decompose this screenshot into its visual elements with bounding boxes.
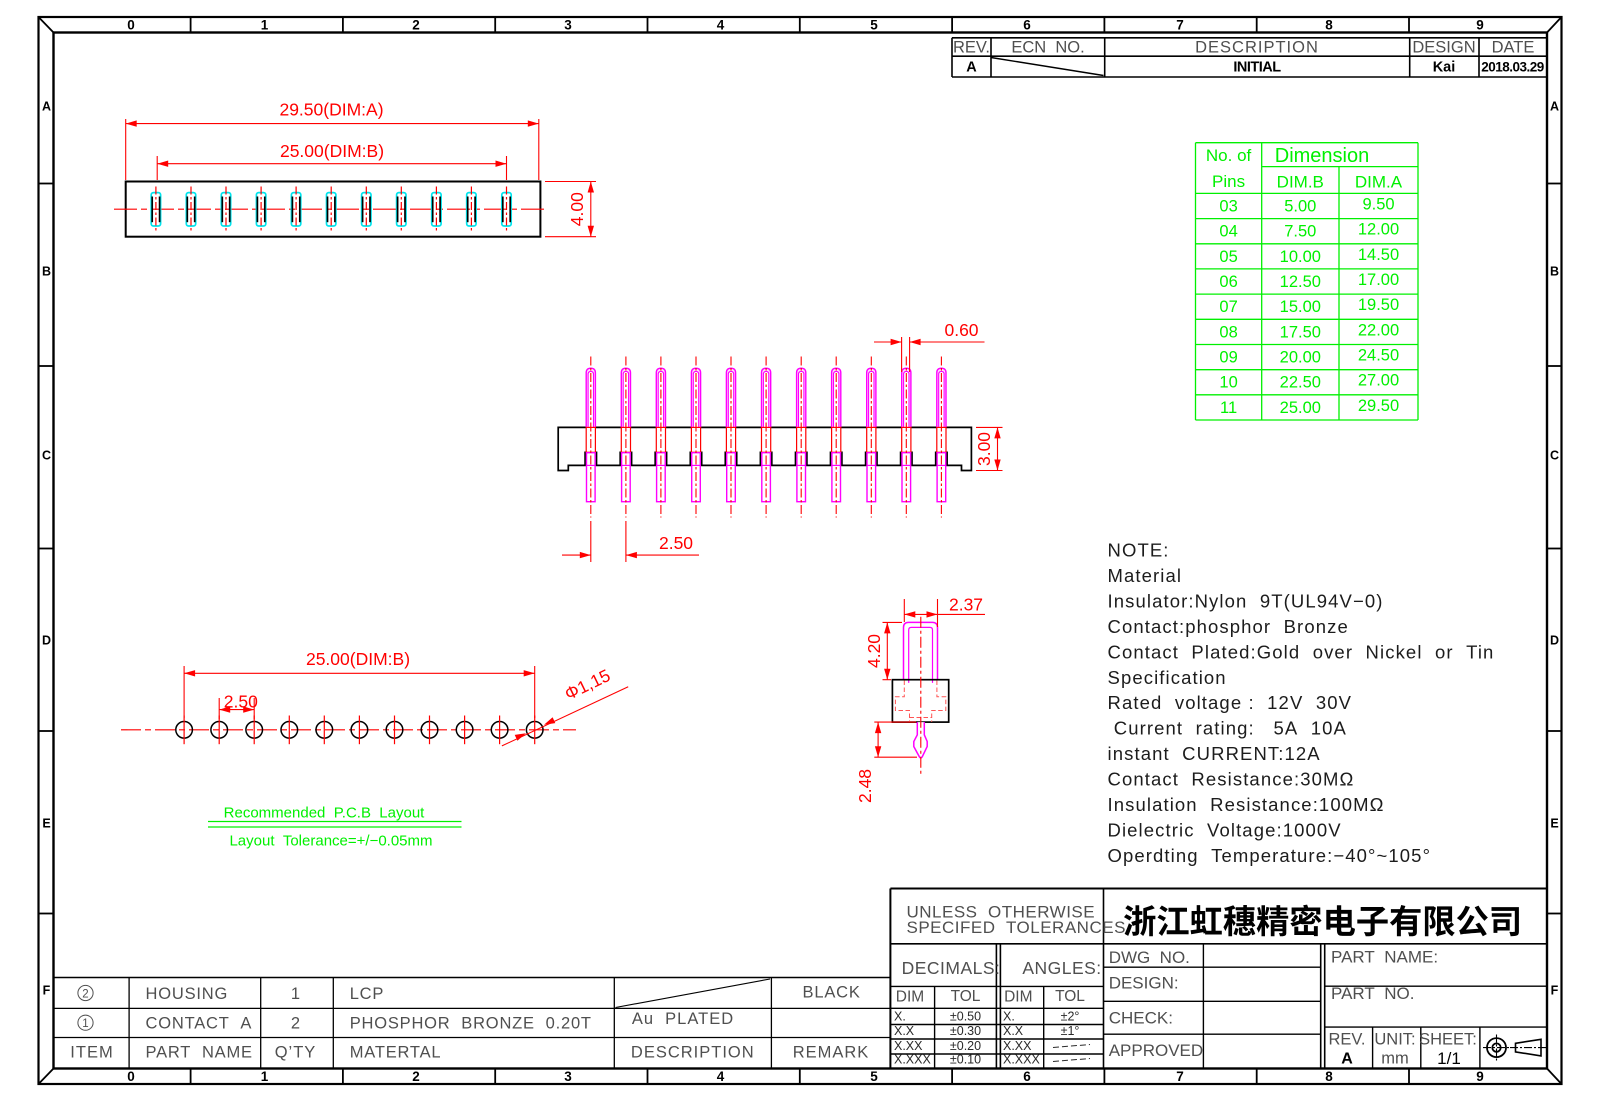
svg-text:17.00: 17.00 — [1358, 271, 1399, 289]
svg-text:D: D — [42, 634, 51, 648]
svg-text:27.00: 27.00 — [1358, 372, 1399, 390]
svg-text:E: E — [42, 817, 50, 831]
svg-text:Insulation Resistance:100MΩ: Insulation Resistance:100MΩ — [1108, 794, 1385, 815]
svg-text:A: A — [42, 100, 51, 114]
svg-text:3: 3 — [564, 18, 572, 33]
svg-text:Contact Resistance:30MΩ: Contact Resistance:30MΩ — [1108, 769, 1355, 790]
svg-text:Kai: Kai — [1433, 60, 1456, 76]
svg-text:2: 2 — [412, 18, 420, 33]
svg-text:X.XX: X.XX — [1003, 1039, 1032, 1053]
svg-text:6: 6 — [1023, 18, 1031, 33]
svg-text:3: 3 — [564, 1069, 572, 1084]
svg-text:REV.: REV. — [1329, 1031, 1366, 1049]
svg-text:1: 1 — [82, 1018, 88, 1030]
svg-text:A: A — [1550, 100, 1559, 114]
svg-text:04: 04 — [1219, 223, 1237, 241]
svg-text:A: A — [966, 60, 977, 76]
svg-text:No. of: No. of — [1206, 146, 1252, 165]
svg-text:Layout Tolerance=+/−0.05mm: Layout Tolerance=+/−0.05mm — [229, 833, 432, 850]
svg-text:DIM.B: DIM.B — [1277, 173, 1324, 192]
svg-text:2.50: 2.50 — [224, 692, 258, 712]
svg-text:8: 8 — [1325, 18, 1333, 33]
svg-text:±0.10: ±0.10 — [950, 1053, 981, 1067]
svg-text:mm: mm — [1381, 1050, 1409, 1068]
svg-text:C: C — [42, 449, 51, 463]
svg-text:Insulator:Nylon 9T(UL94V−0): Insulator:Nylon 9T(UL94V−0) — [1108, 590, 1384, 611]
svg-text:2.37: 2.37 — [949, 595, 983, 615]
svg-text:Dielectric Voltage:1000V: Dielectric Voltage:1000V — [1108, 820, 1342, 841]
svg-text:2.48: 2.48 — [855, 769, 875, 803]
svg-text:25.00: 25.00 — [1280, 399, 1321, 417]
svg-text:03: 03 — [1219, 198, 1237, 216]
svg-text:SPECIFED TOLERANCES: SPECIFED TOLERANCES — [907, 918, 1126, 937]
svg-text:±2°: ±2° — [1061, 1010, 1080, 1024]
svg-text:PART NAME: PART NAME — [146, 1044, 253, 1062]
svg-text:4.00: 4.00 — [567, 192, 587, 226]
svg-text:X.X: X.X — [1003, 1024, 1024, 1038]
svg-text:B: B — [42, 265, 51, 279]
svg-text:±0.30: ±0.30 — [950, 1024, 981, 1038]
svg-text:DESIGN:: DESIGN: — [1109, 974, 1179, 993]
svg-text:REV.: REV. — [953, 39, 990, 57]
svg-text:9.50: 9.50 — [1362, 196, 1394, 214]
svg-text:2: 2 — [291, 1015, 300, 1033]
svg-text:25.00(DIM:B): 25.00(DIM:B) — [306, 649, 410, 669]
svg-text:2.50: 2.50 — [659, 533, 693, 553]
svg-text:1: 1 — [291, 985, 300, 1003]
svg-text:4: 4 — [717, 1069, 725, 1084]
svg-text:UNIT:: UNIT: — [1374, 1031, 1415, 1049]
svg-text:19.50: 19.50 — [1358, 296, 1399, 314]
svg-text:Recommended P.C.B Layout: Recommended P.C.B Layout — [224, 805, 426, 822]
svg-text:Q’TY: Q’TY — [275, 1044, 317, 1062]
svg-text:Au PLATED: Au PLATED — [632, 1010, 734, 1028]
svg-text:Pins: Pins — [1212, 172, 1245, 191]
svg-text:TOL: TOL — [1055, 988, 1085, 1005]
svg-text:0.60: 0.60 — [944, 320, 978, 340]
svg-text:DATE: DATE — [1492, 39, 1535, 57]
svg-text:20.00: 20.00 — [1280, 349, 1321, 367]
svg-text:24.50: 24.50 — [1358, 347, 1399, 365]
svg-text:DESCRIPTION: DESCRIPTION — [1195, 39, 1319, 57]
svg-text:F: F — [1551, 984, 1559, 998]
svg-text:0: 0 — [127, 18, 135, 33]
svg-text:Operdting Temperature:−40°~10: Operdting Temperature:−40°~105° — [1108, 845, 1432, 866]
svg-text:Contact Plated:Gold over Ni: Contact Plated:Gold over Nickel or Tin — [1108, 641, 1495, 662]
svg-text:9: 9 — [1476, 18, 1484, 33]
svg-text:29.50: 29.50 — [1358, 397, 1399, 415]
svg-text:X.XXX: X.XXX — [894, 1053, 931, 1067]
svg-text:CHECK:: CHECK: — [1109, 1009, 1173, 1028]
svg-text:TOL: TOL — [951, 988, 981, 1005]
svg-text:09: 09 — [1219, 349, 1237, 367]
svg-text:DWG NO.: DWG NO. — [1109, 948, 1190, 967]
svg-text:1: 1 — [261, 18, 269, 33]
svg-text:NOTE:: NOTE: — [1108, 540, 1170, 561]
svg-text:C: C — [1550, 449, 1559, 463]
svg-text:APPROVED: APPROVED — [1109, 1041, 1203, 1060]
svg-text:5: 5 — [870, 1069, 878, 1084]
svg-text:F: F — [43, 984, 51, 998]
svg-text:HOUSING: HOUSING — [146, 985, 229, 1003]
svg-text:12.00: 12.00 — [1358, 221, 1399, 239]
svg-text:6: 6 — [1023, 1069, 1031, 1084]
svg-text:ANGLES:: ANGLES: — [1022, 958, 1101, 978]
svg-text:X.X: X.X — [894, 1024, 915, 1038]
svg-text:X.XX: X.XX — [894, 1039, 923, 1053]
svg-text:±0.20: ±0.20 — [950, 1039, 981, 1053]
svg-text:22.00: 22.00 — [1358, 321, 1399, 339]
svg-text:PHOSPHOR BRONZE 0.20T: PHOSPHOR BRONZE 0.20T — [350, 1015, 592, 1033]
svg-text:22.50: 22.50 — [1280, 374, 1321, 392]
svg-text:05: 05 — [1219, 248, 1237, 266]
svg-text:25.00(DIM:B): 25.00(DIM:B) — [280, 141, 384, 161]
svg-text:X.: X. — [894, 1010, 906, 1024]
svg-text:PART NO.: PART NO. — [1331, 984, 1414, 1003]
svg-text:Dimension: Dimension — [1275, 145, 1369, 167]
svg-text:08: 08 — [1219, 323, 1237, 341]
svg-text:ECN NO.: ECN NO. — [1011, 39, 1084, 57]
svg-text:INITIAL: INITIAL — [1233, 60, 1281, 76]
svg-text:Current rating: 5A 10A: Current rating: 5A 10A — [1108, 718, 1347, 739]
svg-text:17.50: 17.50 — [1280, 323, 1321, 341]
svg-text:A: A — [1341, 1051, 1353, 1068]
svg-text:Material: Material — [1108, 565, 1183, 586]
svg-text:7.50: 7.50 — [1284, 223, 1316, 241]
svg-text:X.: X. — [1003, 1010, 1015, 1024]
svg-text:Contact:phosphor Bronze: Contact:phosphor Bronze — [1108, 616, 1349, 637]
svg-text:07: 07 — [1219, 298, 1237, 316]
svg-text:LCP: LCP — [350, 985, 385, 1003]
svg-text:4: 4 — [717, 18, 725, 33]
svg-text:8: 8 — [1325, 1069, 1333, 1084]
svg-text:1/1: 1/1 — [1437, 1049, 1461, 1068]
svg-text:10.00: 10.00 — [1280, 248, 1321, 266]
svg-text:7: 7 — [1176, 18, 1184, 33]
svg-text:15.00: 15.00 — [1280, 298, 1321, 316]
svg-text:2: 2 — [82, 989, 88, 1001]
svg-text:±1°: ±1° — [1061, 1024, 1080, 1038]
svg-text:D: D — [1550, 634, 1559, 648]
svg-text:SHEET:: SHEET: — [1419, 1031, 1477, 1049]
svg-text:14.50: 14.50 — [1358, 246, 1399, 264]
svg-text:X.XXX: X.XXX — [1003, 1053, 1040, 1067]
svg-text:5: 5 — [870, 18, 878, 33]
svg-text:instant CURRENT:12A: instant CURRENT:12A — [1108, 743, 1321, 764]
svg-text:06: 06 — [1219, 273, 1237, 291]
svg-text:DECIMALS:: DECIMALS: — [902, 958, 1001, 978]
svg-text:ITEM: ITEM — [70, 1044, 113, 1062]
svg-text:4.20: 4.20 — [864, 634, 884, 668]
svg-text:7: 7 — [1176, 1069, 1184, 1084]
svg-text:2018.03.29: 2018.03.29 — [1481, 60, 1544, 75]
svg-text:DIM.A: DIM.A — [1355, 173, 1403, 192]
svg-text:±0.50: ±0.50 — [950, 1010, 981, 1024]
svg-text:0: 0 — [127, 1069, 135, 1084]
svg-text:Specification: Specification — [1108, 667, 1227, 688]
svg-text:DESCRIPTION: DESCRIPTION — [631, 1044, 755, 1062]
svg-text:29.50(DIM:A): 29.50(DIM:A) — [279, 100, 383, 120]
svg-text:1: 1 — [261, 1069, 269, 1084]
svg-text:CONTACT A: CONTACT A — [146, 1015, 253, 1033]
svg-text:MATERTAL: MATERTAL — [350, 1044, 442, 1062]
svg-text:11: 11 — [1220, 399, 1237, 417]
svg-text:DIM: DIM — [1004, 989, 1032, 1006]
svg-text:DIM: DIM — [896, 989, 924, 1006]
svg-text:BLACK: BLACK — [803, 984, 861, 1002]
svg-text:5.00: 5.00 — [1284, 198, 1316, 216]
svg-text:9: 9 — [1476, 1069, 1484, 1084]
svg-text:12.50: 12.50 — [1280, 273, 1321, 291]
svg-text:DESIGN: DESIGN — [1412, 39, 1475, 57]
svg-text:E: E — [1550, 817, 1558, 831]
svg-text:3.00: 3.00 — [974, 432, 994, 466]
svg-text:10: 10 — [1219, 374, 1237, 392]
svg-text:Rated voltage : 12V 30V: Rated voltage : 12V 30V — [1108, 692, 1353, 713]
svg-text:B: B — [1550, 265, 1559, 279]
svg-text:PART NAME:: PART NAME: — [1331, 948, 1438, 967]
svg-text:2: 2 — [412, 1069, 420, 1084]
svg-text:REMARK: REMARK — [793, 1044, 870, 1062]
